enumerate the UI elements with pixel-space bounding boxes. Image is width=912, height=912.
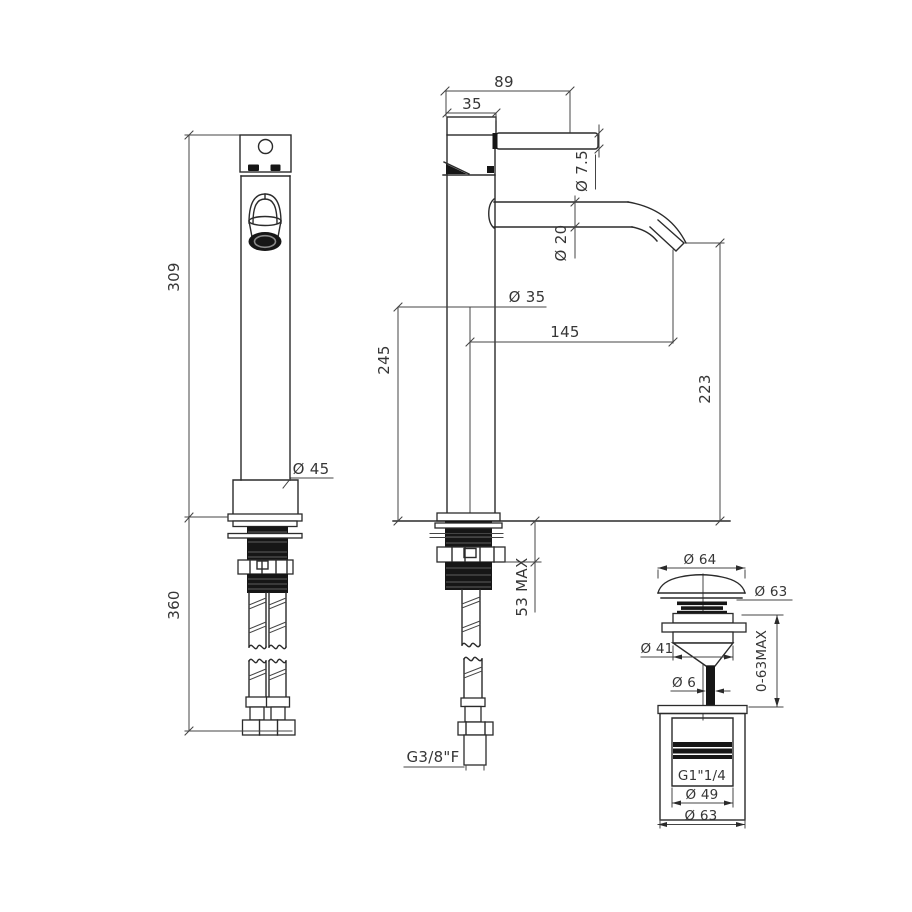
dim-text-309: 309 (165, 262, 183, 292)
dim-text-d45: Ø 45 (293, 460, 330, 478)
dim-text-d35: Ø 35 (509, 288, 546, 306)
spout-side (489, 199, 686, 251)
dim-text-d6: Ø 6 (672, 675, 696, 691)
flex-hose-side (458, 590, 493, 770)
side-view: 89 35 Ø 7.5 Ø 20 Ø 35 145 (375, 73, 730, 770)
label-inlet-thread: G3/8"F (404, 748, 464, 767)
dim-text-063max: 0-63MAX (754, 630, 770, 692)
dim-body-diameter: Ø 63 (658, 808, 745, 828)
front-view: 309 360 Ø 45 (165, 131, 333, 735)
dim-text-89: 89 (494, 73, 514, 91)
dim-text-53max: 53 MAX (513, 557, 531, 616)
dim-stem-diameter: Ø 6 (671, 675, 730, 694)
dim-height-to-spout: 245 (375, 303, 402, 525)
dim-bore-diameter: Ø 49 (672, 787, 733, 807)
dim-handle-depth: 35 (443, 95, 500, 120)
dim-lever-diameter: Ø 7.5 (573, 125, 603, 192)
dim-text-g38f: G3/8"F (406, 748, 459, 766)
waste-view: G1"1/4 Ø 64 Ø 63 Ø 41 Ø 6 (641, 552, 792, 828)
dim-text-245: 245 (375, 345, 393, 375)
dim-text-d64: Ø 64 (684, 552, 717, 568)
dim-text-d49: Ø 49 (686, 787, 719, 803)
dim-text-360: 360 (165, 590, 183, 620)
dim-travel-range: 0-63MAX (742, 615, 783, 707)
dim-text-223: 223 (696, 374, 714, 404)
cold-mark (271, 165, 281, 172)
dim-overall-height: 309 360 (165, 131, 292, 735)
dim-text-d75: Ø 7.5 (573, 150, 591, 192)
faucet-technical-drawing: 309 360 Ø 45 (0, 0, 912, 912)
dim-overall-depth: 89 (441, 73, 574, 132)
dim-outlet-height: 223 (687, 239, 724, 525)
technical-drawing-page: 309 360 Ø 45 (0, 0, 912, 912)
dim-text-d20: Ø 20 (552, 225, 570, 262)
dim-spout-diameter: Ø 20 (552, 196, 579, 261)
dim-text-d63-bottom: Ø 63 (685, 808, 718, 824)
label-body-diameter: Ø 35 (398, 288, 546, 307)
dim-text-d41: Ø 41 (641, 641, 674, 657)
dim-text-g114: G1"1/4 (678, 768, 726, 784)
dim-text-d63-top: Ø 63 (755, 584, 788, 600)
dim-text-35: 35 (462, 95, 482, 113)
dim-spout-reach: 145 (466, 250, 677, 346)
flex-hoses (243, 593, 296, 735)
spout-front (249, 194, 282, 251)
hot-mark (248, 165, 259, 172)
dim-max-deck: 53 MAX (505, 517, 541, 617)
dim-text-145: 145 (550, 323, 580, 341)
